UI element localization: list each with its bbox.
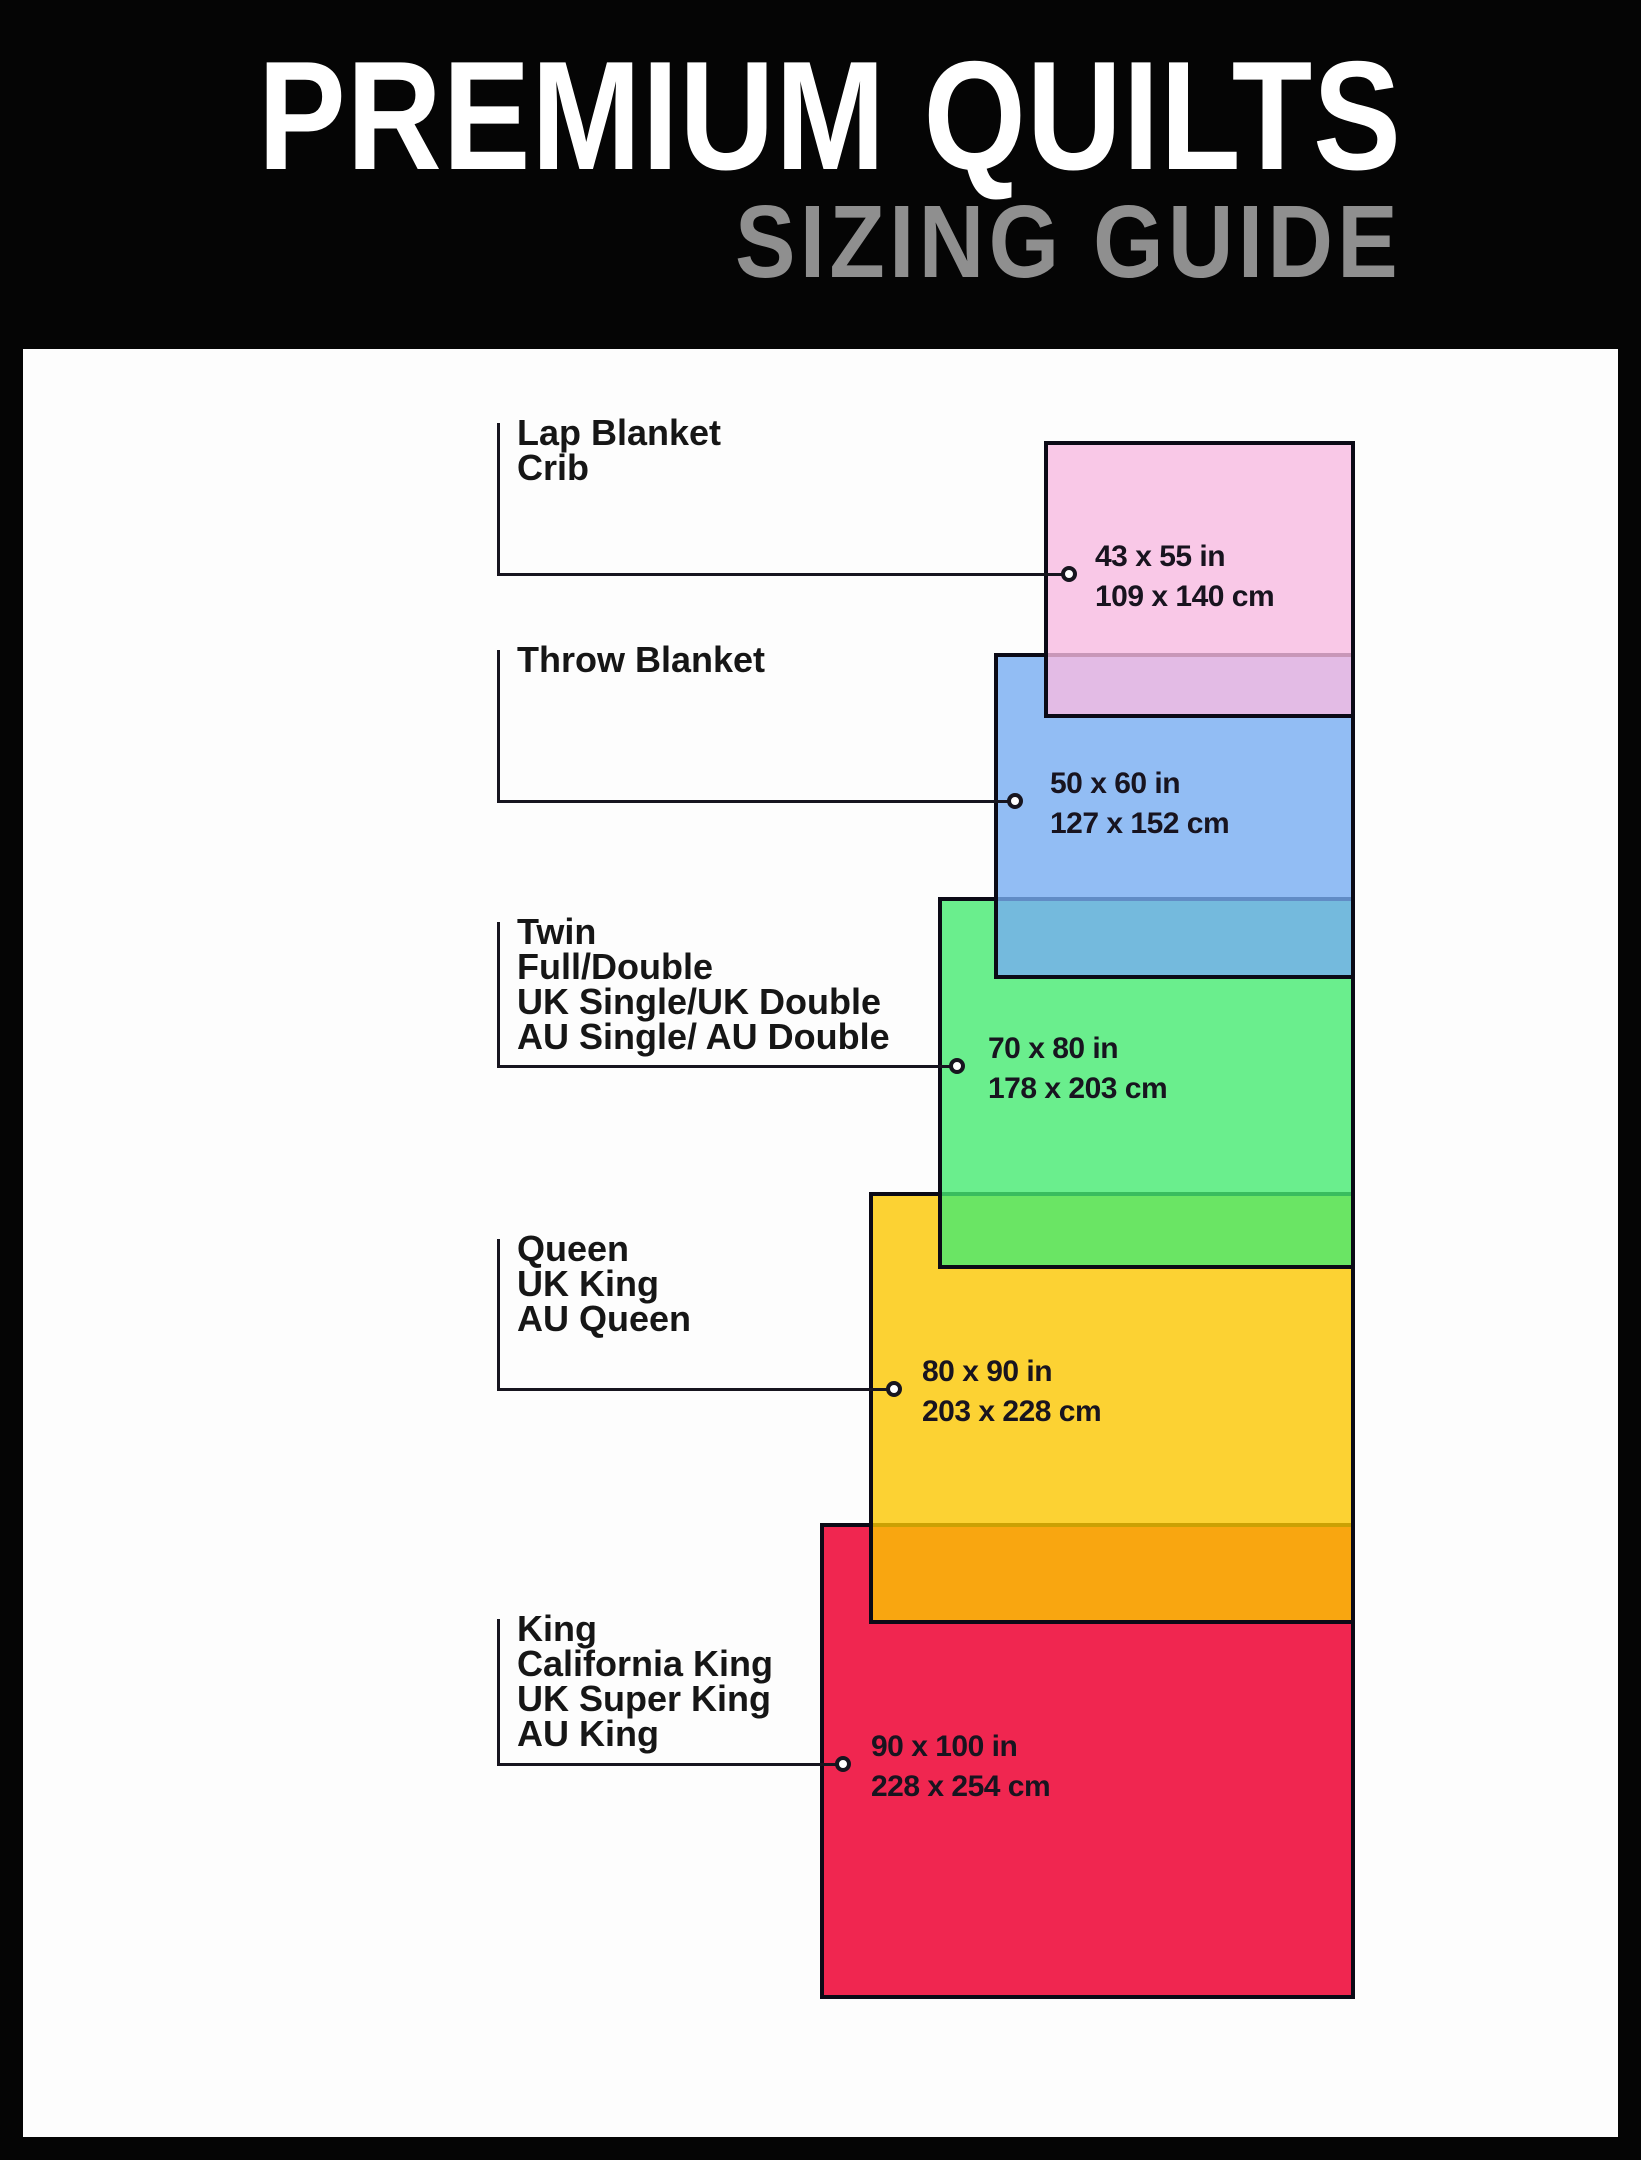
callout-line-horizontal (497, 573, 1063, 576)
dimension-text-queen-uk-king-au-queen: 80 x 90 in203 x 228 cm (922, 1352, 1101, 1432)
size-category-label-king-california-king: KingCalifornia KingUK Super KingAU King (517, 1611, 773, 1751)
size-marker-dot (949, 1058, 965, 1074)
dimension-inches: 43 x 55 in (1095, 537, 1274, 577)
dimension-cm: 109 x 140 cm (1095, 577, 1274, 617)
dimension-cm: 178 x 203 cm (988, 1069, 1167, 1109)
callout-line-horizontal (497, 1763, 837, 1766)
callout-line-vertical (497, 1619, 500, 1766)
size-category-label-queen-uk-king-au-queen: QueenUK KingAU Queen (517, 1231, 691, 1336)
dimension-inches: 90 x 100 in (871, 1727, 1050, 1767)
dimension-inches: 80 x 90 in (922, 1352, 1101, 1392)
callouts-layer: Lap BlanketCrib43 x 55 in109 x 140 cmThr… (0, 0, 1641, 2160)
size-category-label-twin-full-double: TwinFull/DoubleUK Single/UK DoubleAU Sin… (517, 914, 890, 1054)
dimension-cm: 228 x 254 cm (871, 1767, 1050, 1807)
size-category-label-line: AU Queen (517, 1301, 691, 1336)
size-marker-dot (1007, 793, 1023, 809)
size-category-label-line: UK Single/UK Double (517, 984, 890, 1019)
size-category-label-lap-blanket-crib: Lap BlanketCrib (517, 415, 721, 485)
callout-line-vertical (497, 1239, 500, 1391)
size-category-label-line: UK Super King (517, 1681, 773, 1716)
size-category-label-line: King (517, 1611, 773, 1646)
callout-line-horizontal (497, 1388, 888, 1391)
callout-line-horizontal (497, 1065, 951, 1068)
dimension-text-king-california-king: 90 x 100 in228 x 254 cm (871, 1727, 1050, 1807)
callout-line-horizontal (497, 800, 1009, 803)
callout-line-vertical (497, 922, 500, 1068)
dimension-text-twin-full-double: 70 x 80 in178 x 203 cm (988, 1029, 1167, 1109)
size-marker-dot (835, 1756, 851, 1772)
callout-line-vertical (497, 423, 500, 576)
size-category-label-throw-blanket: Throw Blanket (517, 642, 765, 677)
size-category-label-line: UK King (517, 1266, 691, 1301)
size-category-label-line: Throw Blanket (517, 642, 765, 677)
size-category-label-line: Crib (517, 450, 721, 485)
size-category-label-line: California King (517, 1646, 773, 1681)
size-category-label-line: Lap Blanket (517, 415, 721, 450)
dimension-text-throw-blanket: 50 x 60 in127 x 152 cm (1050, 764, 1229, 844)
dimension-inches: 50 x 60 in (1050, 764, 1229, 804)
dimension-text-lap-blanket-crib: 43 x 55 in109 x 140 cm (1095, 537, 1274, 617)
infographic-canvas: PREMIUM QUILTS SIZING GUIDE Lap BlanketC… (0, 0, 1641, 2160)
dimension-cm: 127 x 152 cm (1050, 804, 1229, 844)
dimension-cm: 203 x 228 cm (922, 1392, 1101, 1432)
size-marker-dot (1061, 566, 1077, 582)
dimension-inches: 70 x 80 in (988, 1029, 1167, 1069)
size-marker-dot (886, 1381, 902, 1397)
size-category-label-line: Twin (517, 914, 890, 949)
callout-line-vertical (497, 650, 500, 803)
size-category-label-line: Queen (517, 1231, 691, 1266)
size-category-label-line: Full/Double (517, 949, 890, 984)
size-category-label-line: AU King (517, 1716, 773, 1751)
size-category-label-line: AU Single/ AU Double (517, 1019, 890, 1054)
